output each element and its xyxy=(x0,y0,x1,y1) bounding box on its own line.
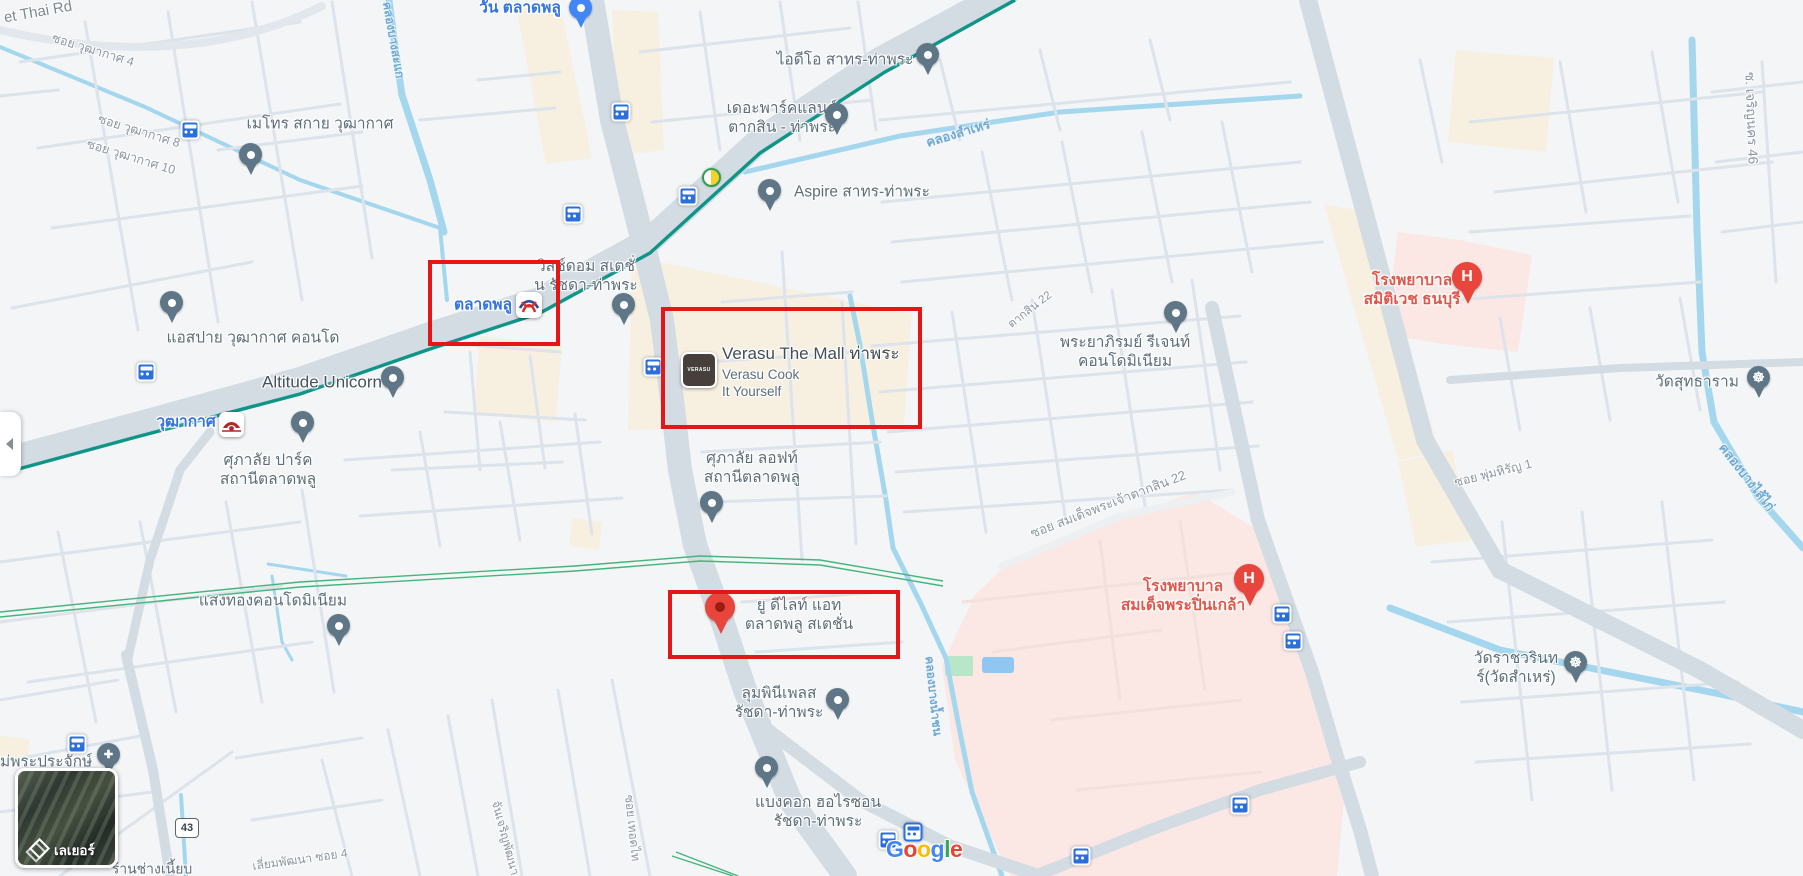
google-logo[interactable]: Google xyxy=(886,836,962,863)
hospital-pin-pinklao[interactable]: H xyxy=(1233,564,1267,610)
bus-stop-icon[interactable] xyxy=(612,103,631,122)
layers-button[interactable]: เลเยอร์ xyxy=(15,768,118,868)
poi-pin-lumpini[interactable] xyxy=(825,688,851,722)
pool-area xyxy=(982,657,1014,673)
poi-pin-one-talat-phlu[interactable] xyxy=(568,0,594,30)
highlight-box-verasu xyxy=(661,307,922,429)
poi-pin-aspai[interactable] xyxy=(159,291,185,325)
map-viewport[interactable]: et Thai Rd ซอย วุฒากาศ 4 ซอย วุฒากาศ 8 ซ… xyxy=(0,0,1803,876)
bus-stop-icon[interactable] xyxy=(564,205,583,224)
poi-label-chang-shop[interactable]: ร้านช่างเนี้ยบ xyxy=(112,860,193,876)
hospital-icon: H xyxy=(1452,263,1482,291)
poi-label-ideo[interactable]: ไอดีโอ สาทร-ท่าพระ xyxy=(777,52,914,71)
bus-stop-icon[interactable] xyxy=(137,363,156,382)
layers-label: เลเยอร์ xyxy=(54,839,95,861)
bus-stop-icon[interactable] xyxy=(68,735,87,754)
poi-label-metro-sky[interactable]: เมโทร สกาย วุฒากาศ xyxy=(247,116,394,135)
poi-pin-phraya-phirom[interactable] xyxy=(1163,301,1189,335)
bus-stop-icon[interactable] xyxy=(1284,632,1303,651)
temple-pin-wat-ratchawarin[interactable]: ☸ xyxy=(1563,651,1589,685)
poi-pin-aspire[interactable] xyxy=(757,179,783,213)
poi-pin-ideo[interactable] xyxy=(915,43,941,77)
poi-label-samitivej-hospital[interactable]: โรงพยาบาล สมิติเวช ธนบุรี xyxy=(1364,272,1461,310)
side-panel-collapse-button[interactable] xyxy=(0,412,21,476)
highlight-box-talat-phlu xyxy=(428,260,560,346)
srt-station-icon[interactable] xyxy=(219,412,244,437)
dharma-wheel-icon: ☸ xyxy=(1564,652,1587,673)
bus-stop-icon[interactable] xyxy=(1072,847,1091,866)
hospital-pin-samitivej[interactable]: H xyxy=(1451,262,1485,308)
poi-label-supalai-loft[interactable]: ศุภาลัย ลอฟท์ สถานีตลาดพลู xyxy=(704,450,800,488)
bus-stop-icon[interactable] xyxy=(1273,605,1292,624)
poi-label-supalai-park[interactable]: ศุภาลัย ปาร์ค สถานีตลาดพลู xyxy=(220,452,316,490)
poi-label-wat-ratchawarin[interactable]: วัดราชวรินท ร์(วัดสำเหร่) xyxy=(1474,650,1558,688)
poi-pin-supalai-park[interactable] xyxy=(290,411,316,445)
poi-label-parkland[interactable]: เดอะพาร์คแลนด์ ตากสิน - ท่าพระ xyxy=(727,100,838,138)
street-label-charoen-nakhon-46: ซ. เจริญนคร 46 xyxy=(1739,72,1764,165)
poi-pin-supalai-loft[interactable] xyxy=(699,491,725,525)
poi-label-altitude-unicorn[interactable]: Altitude Unicorn xyxy=(262,373,382,394)
junction-icon xyxy=(702,168,721,187)
poi-label-one-talat-phlu[interactable]: วัน ตลาดพลู xyxy=(479,0,561,18)
temple-pin-wat-suttharam[interactable]: ☸ xyxy=(1746,366,1772,400)
poi-pin-whizdom[interactable] xyxy=(611,293,637,327)
poi-pin-parkland[interactable] xyxy=(824,103,850,137)
poi-label-aspire[interactable]: Aspire สาทร-ท่าพระ xyxy=(794,184,930,203)
poi-label-phraya-phirom[interactable]: พระยาภิรมย์ รีเจนท์ คอนโดมิเนียม xyxy=(1060,334,1190,372)
poi-pin-altitude[interactable] xyxy=(380,366,406,400)
cross-icon: ✚ xyxy=(97,744,120,765)
route-shield-43: 43 xyxy=(175,818,199,838)
poi-label-aspai[interactable]: แอสปาย วุฒากาศ คอนโด xyxy=(167,330,340,349)
bus-stop-icon[interactable] xyxy=(1231,796,1250,815)
poi-label-wat-suttharam[interactable]: วัดสุทธาราม xyxy=(1655,374,1739,393)
poi-pin-sangthong[interactable] xyxy=(326,614,352,648)
poi-pin-bangkok-horizon[interactable] xyxy=(754,756,780,790)
bus-stop-icon[interactable] xyxy=(679,187,698,206)
poi-label-pinklao-hospital[interactable]: โรงพยาบาล สมเด็จพระปิ่นเกล้า xyxy=(1121,578,1245,616)
bus-stop-icon[interactable] xyxy=(181,121,200,140)
poi-label-sangthong[interactable]: แสงทองคอนโดมิเนียม xyxy=(199,593,347,612)
hospital-icon: H xyxy=(1234,565,1264,593)
bus-stop-icon[interactable] xyxy=(644,358,663,377)
poi-label-lumpini[interactable]: ลุมพินีเพลส รัชดา-ท่าพระ xyxy=(735,685,824,723)
poi-label-bangkok-horizon[interactable]: แบงคอก ฮอไรซอน รัชดา-ท่าพระ xyxy=(755,794,881,832)
poi-label-wutthakat-station[interactable]: วุฒากาศ xyxy=(156,414,215,433)
layers-icon xyxy=(29,838,50,859)
poi-pin-metro-sky[interactable] xyxy=(238,143,264,177)
dharma-wheel-icon: ☸ xyxy=(1747,367,1770,388)
highlight-box-u-delight xyxy=(668,590,900,659)
